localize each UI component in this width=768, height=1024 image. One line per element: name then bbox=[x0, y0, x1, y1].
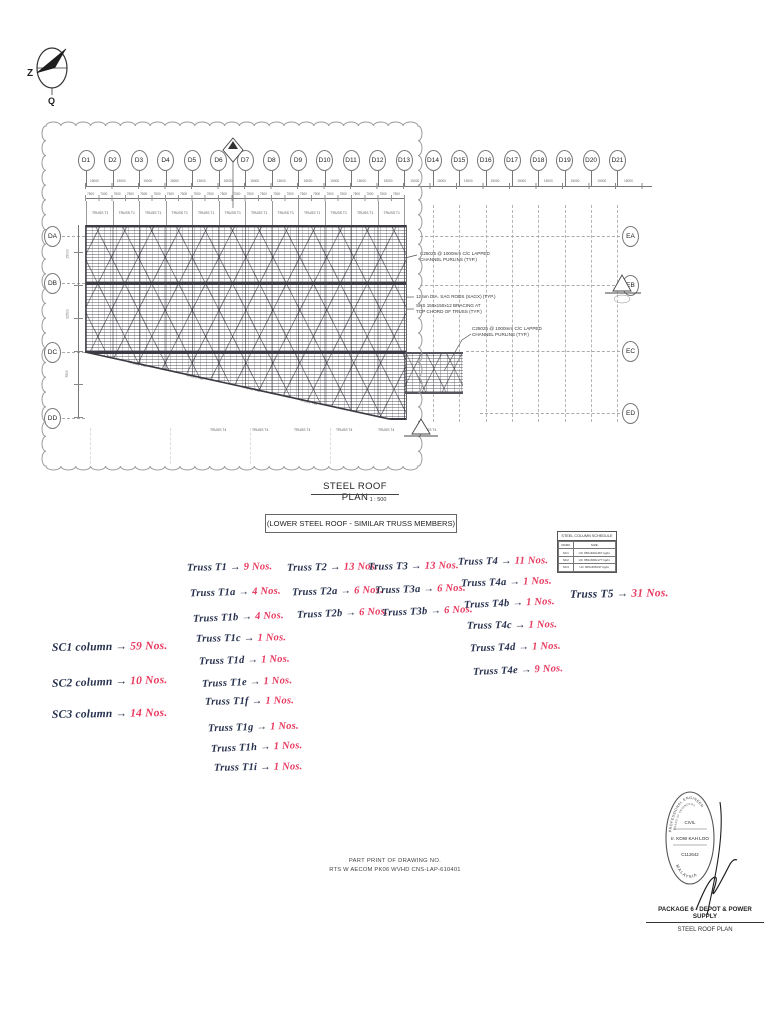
schedule-cell: SC2 bbox=[559, 556, 574, 563]
arrow-icon: → bbox=[512, 620, 529, 631]
faint-grid-continuation bbox=[170, 428, 171, 464]
truss-tag-top: TRUSS T1 bbox=[331, 211, 347, 215]
arrow-icon: → bbox=[427, 605, 444, 617]
truss-count: 1 Nos. bbox=[263, 675, 292, 687]
arrow-icon: → bbox=[518, 664, 535, 676]
compass-label-bottom: Q bbox=[48, 96, 55, 106]
truss-count: 1 Nos. bbox=[532, 641, 561, 653]
grid-bubble-da: DA bbox=[44, 226, 61, 247]
half-bay-dimension: 7500 bbox=[127, 192, 134, 196]
grid-bubble-dc: DC bbox=[44, 342, 61, 363]
truss-count-note: Truss T1e→1 Nos. bbox=[202, 675, 293, 690]
half-bay-dimension: 7500 bbox=[260, 192, 267, 196]
grid-tick bbox=[192, 201, 193, 225]
grid-tick bbox=[245, 201, 246, 225]
grid-bubble-d18: D18 bbox=[530, 150, 547, 171]
half-bay-dimension: 7500 bbox=[140, 192, 147, 196]
bay-dimension: 15000 bbox=[544, 179, 553, 183]
arrow-icon: → bbox=[509, 597, 526, 609]
truss-count: 11 Nos. bbox=[515, 555, 549, 567]
truss-count-note: Truss T4b→1 Nos. bbox=[464, 596, 555, 611]
arrow-icon: → bbox=[112, 675, 130, 688]
arrow-icon: → bbox=[241, 633, 258, 644]
truss-count-note: Truss T2→13 Nos. bbox=[287, 561, 378, 574]
schedule-cell: SC3 bbox=[559, 564, 574, 571]
grid-bubble-d1: D1 bbox=[78, 150, 95, 171]
grid-line-dashed bbox=[565, 205, 566, 422]
arrow-icon: → bbox=[257, 762, 274, 773]
stamp-discipline: CIVIL bbox=[685, 820, 697, 825]
truss-name: SC2 column bbox=[52, 676, 113, 690]
grid-bubble-dd: DD bbox=[44, 408, 61, 429]
bay-dimension: 15000 bbox=[624, 179, 633, 183]
bay-dimension: 15000 bbox=[517, 179, 526, 183]
grid-tick bbox=[325, 201, 326, 225]
schedule-cell: UC 305x305x97 kg/m bbox=[573, 564, 615, 571]
truss-tag-top: TRUSS T1 bbox=[92, 211, 108, 215]
truss-name: Truss T2b bbox=[297, 608, 343, 621]
truss-count-note: SC3 column→14 Nos. bbox=[52, 707, 168, 721]
half-bay-dimension: 7500 bbox=[100, 192, 107, 196]
bay-dimension: 15000 bbox=[224, 179, 233, 183]
grid-stub bbox=[62, 418, 85, 419]
grid-bubble-d7: D7 bbox=[237, 150, 254, 171]
half-bay-dimension: 7500 bbox=[340, 192, 347, 196]
truss-chord-line bbox=[86, 282, 406, 285]
bay-dimension: 15000 bbox=[250, 179, 259, 183]
arrow-icon: → bbox=[238, 611, 255, 623]
truss-tag-bottom: TRUSS T4 bbox=[336, 428, 352, 432]
grid-tick bbox=[272, 201, 273, 225]
drawing-title: STEEL ROOF PLAN bbox=[646, 927, 764, 933]
truss-tag-bottom: TRUSS T4 bbox=[420, 428, 436, 432]
grid-tick bbox=[404, 201, 405, 225]
grid-line-dashed bbox=[538, 205, 539, 422]
roof-truss-strip-right bbox=[405, 352, 463, 394]
half-bay-dimension: 7500 bbox=[193, 192, 200, 196]
half-bay-dimension: 7500 bbox=[167, 192, 174, 196]
grid-bubble-ec: EC bbox=[622, 341, 639, 362]
truss-count: 9 Nos. bbox=[244, 561, 273, 572]
purlin-note: SHS 150x150x12 BRACING ATTOP CHORD OF TR… bbox=[416, 303, 482, 315]
grid-bubble-d2: D2 bbox=[104, 150, 121, 171]
half-bay-dimension: 7500 bbox=[87, 192, 94, 196]
stamp-arc-bottom: MALAYSIA bbox=[675, 864, 699, 880]
bay-dimension: 15000 bbox=[491, 179, 500, 183]
bay-dimension: 15000 bbox=[357, 179, 366, 183]
grid-bubble-d9: D9 bbox=[290, 150, 307, 171]
grid-tick bbox=[113, 201, 114, 225]
truss-count: 10 Nos. bbox=[130, 674, 168, 687]
truss-count-note: Truss T1b→4 Nos. bbox=[193, 610, 284, 625]
stamp-arc-top: PROFESSIONAL ENGINEER bbox=[668, 796, 704, 833]
truss-count: 1 Nos. bbox=[261, 654, 290, 666]
stamp-engineer-name: Ir. KOW KAH LOO bbox=[671, 836, 709, 841]
bay-dimension: 15000 bbox=[464, 179, 473, 183]
grid-tick bbox=[378, 201, 379, 225]
grid-bubble-d4: D4 bbox=[157, 150, 174, 171]
arrow-icon: → bbox=[244, 655, 261, 666]
arrow-icon: → bbox=[235, 587, 252, 598]
grid-bubble-d15: D15 bbox=[451, 150, 468, 171]
arrow-icon: → bbox=[420, 584, 437, 595]
truss-count: 13 Nos. bbox=[425, 560, 459, 572]
grid-bubble-db: DB bbox=[44, 273, 61, 294]
truss-name: Truss T4e bbox=[473, 665, 518, 678]
truss-count-note: Truss T1g→1 Nos. bbox=[208, 721, 299, 735]
truss-name: Truss T3 bbox=[368, 561, 408, 573]
truss-name: Truss T3a bbox=[375, 584, 421, 596]
left-dimension: 22500 bbox=[66, 309, 70, 318]
arrow-icon: → bbox=[112, 641, 130, 653]
truss-count-note: Truss T1f→1 Nos. bbox=[205, 695, 294, 708]
truss-tag-bottom: TRUSS T4 bbox=[252, 428, 268, 432]
half-bay-dimension: 7500 bbox=[313, 192, 320, 196]
bay-dimension: 15000 bbox=[410, 179, 419, 183]
svg-text:MALAYSIA: MALAYSIA bbox=[675, 864, 699, 880]
grid-tick bbox=[166, 201, 167, 225]
grid-line-dashed bbox=[486, 205, 487, 422]
note-line: 12mm DIA. SAG RODS (SAGX) (TYP.) bbox=[416, 294, 496, 300]
truss-name: Truss T4d bbox=[470, 642, 516, 654]
half-bay-dimension: 7500 bbox=[353, 192, 360, 196]
truss-count-note: Truss T2b→6 Nos. bbox=[297, 606, 388, 621]
bay-dimension: 15000 bbox=[437, 179, 446, 183]
schedule-cell: UC 356x368x177 kg/m bbox=[573, 556, 615, 563]
half-bay-dimension: 7500 bbox=[393, 192, 400, 196]
grid-bubble-d8: D8 bbox=[263, 150, 280, 171]
north-arrow-compass: Z Q bbox=[24, 42, 84, 106]
package-title: PACKAGE 6 - DEPOT & POWER SUPPLY bbox=[646, 906, 764, 923]
half-bay-dimension: 7500 bbox=[154, 192, 161, 196]
dimension-ticks bbox=[85, 183, 652, 189]
grid-bubble-d10: D10 bbox=[316, 150, 333, 171]
half-bay-dimension: 7500 bbox=[273, 192, 280, 196]
part-print-line2: RTS W AECOM PK06 WVHD CNS-LAP-610401 bbox=[295, 866, 495, 875]
truss-count-note: Truss T1h→1 Nos. bbox=[211, 740, 303, 755]
grid-bubble-eb: EB bbox=[622, 275, 639, 296]
grid-bubble-d14: D14 bbox=[425, 150, 442, 171]
truss-count-note: Truss T4c→1 Nos. bbox=[467, 619, 557, 632]
truss-name: Truss T1b bbox=[193, 612, 239, 625]
half-bay-dimension: 7500 bbox=[300, 192, 307, 196]
grid-row-line bbox=[420, 285, 620, 286]
truss-name: SC1 column bbox=[52, 641, 113, 654]
truss-count-note: Truss T1a→4 Nos. bbox=[190, 586, 281, 600]
truss-name: Truss T5 bbox=[570, 588, 614, 601]
truss-count: 1 Nos. bbox=[526, 596, 555, 608]
note-line: TOP CHORD OF TRUSS (TYP.) bbox=[416, 309, 482, 315]
grid-bubble-d17: D17 bbox=[504, 150, 521, 171]
arrow-icon: → bbox=[257, 741, 274, 753]
truss-tag-top: TRUSS T1 bbox=[198, 211, 214, 215]
bay-dimension: 15000 bbox=[117, 179, 126, 183]
half-bay-dimension: 7500 bbox=[247, 192, 254, 196]
truss-count: 59 Nos. bbox=[130, 640, 167, 653]
truss-count-note: SC2 column→10 Nos. bbox=[52, 674, 168, 690]
steel-column-schedule-table: STEEL COLUMN SCHEDULE MARK SIZE SC1 UC 3… bbox=[557, 531, 617, 573]
arrow-icon: → bbox=[342, 607, 359, 619]
truss-tag-top: TRUSS T1 bbox=[119, 211, 135, 215]
truss-chord-line bbox=[86, 351, 406, 354]
truss-tag-bottom: TRUSS T4 bbox=[294, 428, 310, 432]
bay-dimension: 15000 bbox=[170, 179, 179, 183]
truss-name: Truss T1f bbox=[205, 696, 249, 708]
truss-name: Truss T1d bbox=[199, 655, 245, 667]
grid-row-line bbox=[480, 413, 620, 414]
truss-name: Truss T1e bbox=[202, 677, 247, 690]
truss-name: Truss T2a bbox=[292, 586, 338, 598]
truss-count-note: Truss T3a→6 Nos. bbox=[375, 583, 466, 597]
grid-bubble-d21: D21 bbox=[609, 150, 626, 171]
truss-tag-top: TRUSS T1 bbox=[384, 211, 400, 215]
truss-name: Truss T1c bbox=[196, 633, 241, 645]
arrow-icon: → bbox=[249, 696, 266, 707]
truss-count: 1 Nos. bbox=[257, 632, 286, 643]
truss-count-note: Truss T3→13 Nos. bbox=[368, 560, 459, 573]
bay-dimension: 15000 bbox=[197, 179, 206, 183]
grid-bubble-d5: D5 bbox=[184, 150, 201, 171]
compass-label-left: Z bbox=[27, 68, 33, 79]
grid-bubble-d6: D6 bbox=[210, 150, 227, 171]
purlin-note: 12mm DIA. SAG RODS (SAGX) (TYP.) bbox=[416, 294, 496, 300]
truss-count: 14 Nos. bbox=[130, 707, 167, 720]
truss-tag-bottom: TRUSS T4 bbox=[378, 428, 394, 432]
stamp-registration-number: C112642 bbox=[681, 852, 699, 857]
truss-count-note: Truss T1→9 Nos. bbox=[187, 561, 273, 573]
truss-count: 31 Nos. bbox=[631, 587, 668, 600]
truss-name: Truss T2 bbox=[287, 562, 327, 574]
half-bay-dimension: 7500 bbox=[114, 192, 121, 196]
part-print-note: PART PRINT OF DRAWING NO. RTS W AECOM PK… bbox=[295, 857, 495, 876]
arrow-icon: → bbox=[112, 708, 130, 720]
half-bay-dimension: 7500 bbox=[366, 192, 373, 196]
truss-count-note: Truss T5→31 Nos. bbox=[570, 587, 669, 601]
truss-count-note: Truss T4a→1 Nos. bbox=[461, 576, 552, 590]
truss-count-note: Truss T3b→6 Nos. bbox=[382, 604, 473, 619]
truss-tag-bottom: TRUSS T4 bbox=[210, 428, 226, 432]
grid-tick bbox=[219, 201, 220, 225]
purlin-note: C25025 @ 1000mm C/C LAPPEDCHANNEL PURLIN… bbox=[420, 251, 490, 263]
truss-tag-top: TRUSS T1 bbox=[172, 211, 188, 215]
arrow-icon: → bbox=[247, 676, 264, 688]
truss-count: 1 Nos. bbox=[274, 761, 303, 772]
schedule-header-size: SIZE bbox=[573, 542, 615, 549]
signature-stroke bbox=[707, 802, 721, 915]
arrow-icon: → bbox=[327, 562, 344, 573]
truss-count-note: SC1 column→59 Nos. bbox=[52, 640, 168, 654]
bay-dimension: 15000 bbox=[597, 179, 606, 183]
half-bay-dimension: 7500 bbox=[380, 192, 387, 196]
arrow-icon: → bbox=[227, 562, 244, 573]
grid-line-dashed bbox=[617, 205, 618, 422]
truss-count: 1 Nos. bbox=[265, 695, 294, 706]
truss-count-note: Truss T1c→1 Nos. bbox=[196, 632, 286, 645]
truss-name: Truss T4 bbox=[458, 556, 498, 568]
truss-name: Truss T1a bbox=[190, 587, 236, 599]
arrow-icon: → bbox=[506, 577, 523, 588]
half-bay-dimension: 7500 bbox=[326, 192, 333, 196]
grid-tick bbox=[86, 201, 87, 225]
truss-tag-top: TRUSS T1 bbox=[145, 211, 161, 215]
truss-count-note: Truss T4d→1 Nos. bbox=[470, 641, 561, 655]
left-dimension-ticks bbox=[74, 225, 83, 418]
svg-text:PROFESSIONAL ENGINEER: PROFESSIONAL ENGINEER bbox=[668, 796, 704, 833]
faint-grid-continuation bbox=[250, 428, 251, 464]
purlin-note: C25025 @ 1000mm C/C LAPPEDCHANNEL PURLIN… bbox=[472, 326, 542, 338]
plan-scale: 1 : 500 bbox=[348, 497, 408, 503]
arrow-icon: → bbox=[498, 556, 515, 567]
left-dimension: 15000 bbox=[66, 249, 70, 258]
schedule-cell: SC1 bbox=[559, 549, 574, 556]
truss-count: 4 Nos. bbox=[255, 610, 284, 622]
grid-row-line bbox=[420, 236, 620, 237]
grid-tick bbox=[351, 201, 352, 225]
scanned-drawing-page: { "document": { "title": "STEEL ROOF PLA… bbox=[0, 0, 768, 1024]
arrow-icon: → bbox=[408, 561, 425, 572]
grid-tick bbox=[298, 201, 299, 225]
schedule-cell: UC 356x406x467 kg/m bbox=[573, 549, 615, 556]
grid-bubble-d13: D13 bbox=[396, 150, 413, 171]
truss-count: 1 Nos. bbox=[528, 619, 557, 630]
bay-dimension: 15000 bbox=[330, 179, 339, 183]
truss-name: Truss T1h bbox=[211, 742, 257, 755]
truss-name: Truss T4b bbox=[464, 598, 510, 611]
truss-name: SC3 column bbox=[52, 708, 113, 721]
plan-subtitle-box: (LOWER STEEL ROOF - SIMILAR TRUSS MEMBER… bbox=[265, 514, 457, 533]
truss-count-note: Truss T4→11 Nos. bbox=[458, 555, 548, 568]
schedule-title: STEEL COLUMN SCHEDULE bbox=[558, 532, 616, 541]
bay-dimension: 15000 bbox=[90, 179, 99, 183]
truss-name: Truss T1 bbox=[187, 562, 227, 574]
truss-tag-top: TRUSS T1 bbox=[225, 211, 241, 215]
truss-count: 1 Nos. bbox=[274, 740, 303, 752]
truss-name: Truss T1g bbox=[208, 722, 254, 734]
truss-name: Truss T4a bbox=[461, 577, 507, 589]
grid-row-line bbox=[466, 351, 620, 352]
bay-dimension: 15000 bbox=[571, 179, 580, 183]
half-bay-dimension: 7500 bbox=[233, 192, 240, 196]
grid-bubble-ea: EA bbox=[622, 226, 639, 247]
left-dimension: 7500 bbox=[65, 370, 69, 378]
truss-name: Truss T1i bbox=[214, 762, 257, 774]
bay-dimension: 15000 bbox=[143, 179, 152, 183]
note-line: CHANNEL PURLINS (TYP.) bbox=[472, 332, 542, 338]
arrow-icon: → bbox=[515, 642, 532, 653]
truss-name: Truss T4c bbox=[467, 620, 512, 632]
grid-line-dashed bbox=[591, 205, 592, 422]
title-underline bbox=[311, 494, 399, 495]
note-line: CHANNEL PURLINS (TYP.) bbox=[420, 257, 490, 263]
faint-grid-continuation bbox=[90, 428, 91, 464]
faint-grid-continuation bbox=[330, 428, 331, 464]
truss-tag-top: TRUSS T1 bbox=[304, 211, 320, 215]
dimension-ticks bbox=[85, 195, 405, 201]
grid-bubble-d3: D3 bbox=[131, 150, 148, 171]
truss-tag-top: TRUSS T1 bbox=[357, 211, 373, 215]
truss-count: 1 Nos. bbox=[523, 576, 552, 588]
truss-count: 1 Nos. bbox=[270, 721, 299, 733]
arrow-icon: → bbox=[337, 586, 354, 597]
truss-count-note: Truss T1i→1 Nos. bbox=[214, 761, 303, 774]
grid-bubble-ed: ED bbox=[622, 403, 639, 424]
grid-bubble-d11: D11 bbox=[343, 150, 360, 171]
arrow-icon: → bbox=[614, 588, 632, 600]
part-print-line1: PART PRINT OF DRAWING NO. bbox=[295, 857, 495, 866]
grid-bubble-d12: D12 bbox=[369, 150, 386, 171]
truss-count-note: Truss T2a→6 Nos. bbox=[292, 585, 383, 599]
bay-dimension: 15000 bbox=[304, 179, 313, 183]
schedule-header-mark: MARK bbox=[559, 542, 574, 549]
grid-bubble-d20: D20 bbox=[583, 150, 600, 171]
truss-name: Truss T3b bbox=[382, 606, 428, 619]
arrow-icon: → bbox=[253, 722, 270, 733]
truss-count: 4 Nos. bbox=[252, 586, 281, 598]
grid-tick bbox=[139, 201, 140, 225]
half-bay-dimension: 7500 bbox=[287, 192, 294, 196]
truss-tag-top: TRUSS T1 bbox=[251, 211, 267, 215]
bay-dimension: 15000 bbox=[277, 179, 286, 183]
bay-dimension: 15000 bbox=[384, 179, 393, 183]
half-bay-dimension: 7500 bbox=[207, 192, 214, 196]
half-bay-dimension: 7500 bbox=[220, 192, 227, 196]
truss-count-note: Truss T4e→9 Nos. bbox=[473, 663, 564, 678]
truss-tag-top: TRUSS T1 bbox=[278, 211, 294, 215]
truss-chord-line bbox=[86, 225, 406, 227]
truss-count-note: Truss T1d→1 Nos. bbox=[199, 654, 290, 668]
half-bay-dimension: 7500 bbox=[180, 192, 187, 196]
grid-line-dashed bbox=[512, 205, 513, 422]
truss-count: 9 Nos. bbox=[534, 663, 563, 675]
